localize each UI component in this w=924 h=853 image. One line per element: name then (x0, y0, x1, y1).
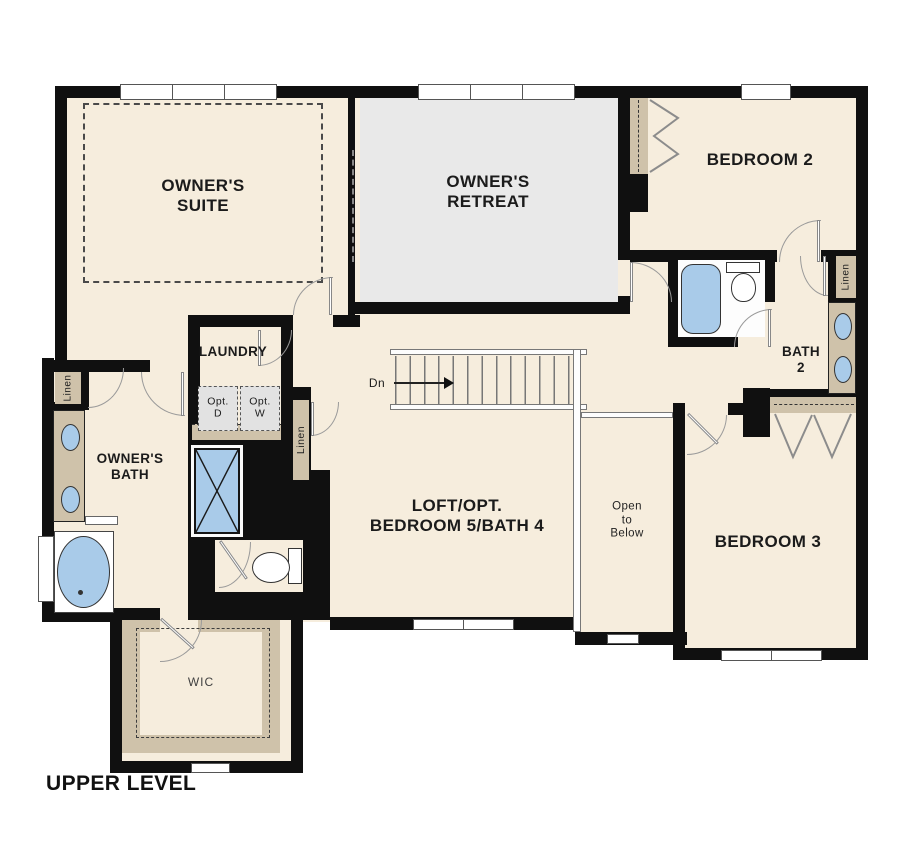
wall-segment (55, 86, 67, 360)
cased-opening-line (352, 150, 354, 262)
wall-segment (110, 608, 122, 773)
room-label-owners-suite: OWNER'S SUITE (161, 176, 244, 216)
window (771, 650, 822, 661)
window (470, 84, 523, 100)
label-opt-dryer: Opt. D (207, 396, 228, 421)
door-leaf (329, 277, 332, 315)
floor-plan: OWNER'S SUITE OWNER'S RETREAT BEDROOM 2 … (0, 0, 924, 853)
room-label-owners-bath: OWNER'S BATH (97, 451, 164, 483)
bifold-door (648, 98, 690, 174)
toilet-fixture (252, 552, 290, 583)
wall-segment (856, 86, 868, 660)
stair-arrow-head (444, 377, 454, 389)
door-leaf (181, 372, 184, 416)
wall-segment (618, 296, 630, 314)
stairs-top-rail (390, 349, 587, 355)
window (120, 84, 173, 100)
bedroom2-closet (630, 98, 648, 174)
plan-title: UPPER LEVEL (46, 772, 196, 796)
room-label-wic: WIC (188, 675, 214, 689)
bifold-door (774, 413, 852, 461)
sink-fixture (834, 313, 852, 340)
label-linen-right: Linen (841, 264, 852, 291)
wall-segment (618, 86, 630, 260)
window (721, 650, 772, 661)
label-linen-center: Linen (295, 426, 307, 454)
label-linen-left: Linen (63, 375, 74, 402)
wall-segment (291, 608, 303, 773)
window (38, 536, 54, 602)
railing-horizontal (581, 412, 673, 418)
window (418, 84, 471, 100)
window (191, 763, 230, 773)
wall-segment (188, 315, 293, 327)
toilet-tank (726, 262, 760, 273)
sink-fixture (61, 486, 80, 513)
window (224, 84, 277, 100)
bathtub-fixture (681, 264, 721, 334)
room-label-bedroom-3: BEDROOM 3 (715, 532, 822, 552)
closet-rod-line (774, 404, 854, 405)
room-label-loft: LOFT/OPT. BEDROOM 5/BATH 4 (370, 496, 544, 536)
stairs (395, 356, 575, 404)
wall-segment (673, 403, 685, 660)
room-label-owners-retreat: OWNER'S RETREAT (446, 172, 529, 212)
stairs-bottom-rail (390, 404, 587, 410)
label-open-to-below: Open to Below (610, 501, 643, 542)
railing-vertical (573, 349, 581, 632)
label-stairs-dn: Dn (369, 376, 385, 390)
hall-gap (618, 260, 630, 296)
bedroom3-closet (770, 397, 856, 413)
room-label-bedroom-2: BEDROOM 2 (707, 150, 814, 170)
wall-segment (348, 302, 620, 314)
tub-drain (78, 590, 83, 595)
area-open-to-below (575, 314, 673, 632)
sink-fixture (61, 424, 80, 451)
door-leaf (630, 262, 633, 302)
toilet-tank (288, 548, 302, 584)
window (463, 619, 514, 630)
room-label-bath-2: BATH 2 (782, 344, 820, 376)
closet-rod-line (638, 100, 639, 172)
toilet-fixture (731, 273, 756, 302)
wall-segment (110, 608, 160, 620)
window (607, 634, 639, 644)
wall-segment (668, 337, 738, 347)
wall-segment (765, 250, 775, 302)
wall-segment (198, 608, 303, 620)
wall-segment (333, 315, 360, 327)
room-label-laundry: LAUNDRY (199, 344, 267, 360)
sink-fixture (834, 356, 852, 383)
bathtub-fixture (57, 536, 110, 608)
vanity-counter-return (85, 516, 118, 525)
label-opt-washer: Opt. W (249, 396, 270, 421)
door-leaf (311, 402, 314, 436)
shower-glass-lines (194, 448, 240, 534)
wall-segment (828, 250, 836, 296)
window (413, 619, 464, 630)
wall-segment (303, 470, 330, 620)
window (741, 84, 791, 100)
door-leaf (823, 256, 826, 296)
window (522, 84, 575, 100)
wall-segment (630, 172, 648, 212)
wall-segment (728, 403, 748, 415)
window (172, 84, 225, 100)
stair-direction-arrow (394, 382, 444, 384)
door-leaf (768, 309, 771, 347)
